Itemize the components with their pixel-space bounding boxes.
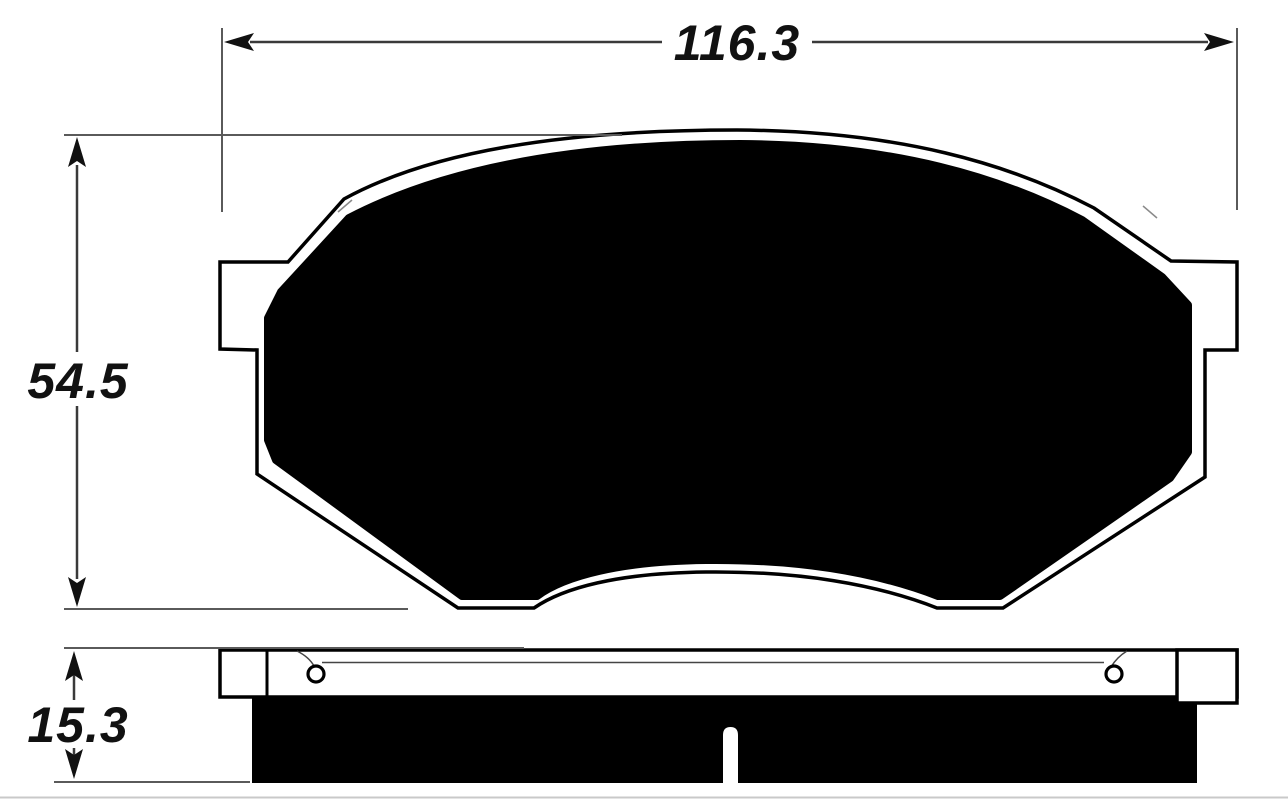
height-arrowhead-down [68, 577, 86, 607]
left-rivet-hole [308, 666, 324, 682]
backing-plate-right-cap [1177, 650, 1237, 703]
width-arrowhead-right [1204, 33, 1234, 51]
face-view [220, 130, 1237, 608]
height-dimension-label: 54.5 [27, 353, 129, 409]
width-arrowhead-left [224, 33, 254, 51]
thickness-dimension-label: 15.3 [27, 697, 128, 753]
chamfer-tick-right [1143, 206, 1157, 218]
technical-drawing-canvas: 116.3 54.5 15.3 [0, 0, 1288, 800]
friction-strip [252, 695, 1197, 783]
width-dimension-label: 116.3 [674, 15, 800, 71]
right-rivet-hole [1106, 666, 1122, 682]
backing-plate-strip [220, 650, 1237, 697]
edge-view [220, 650, 1237, 783]
height-arrowhead-up [68, 137, 86, 167]
friction-material [268, 144, 1188, 596]
brake-pad-diagram: 116.3 54.5 15.3 [0, 0, 1288, 800]
